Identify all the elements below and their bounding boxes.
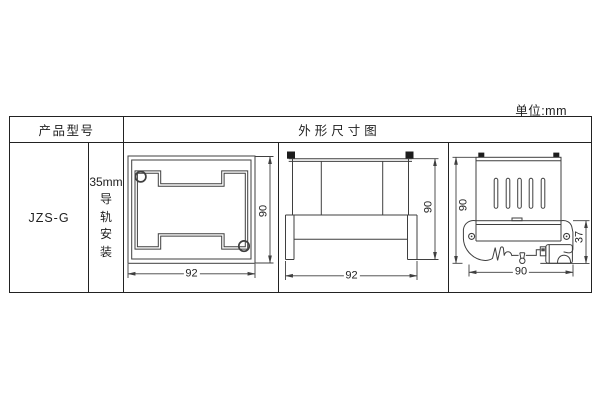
front-view-width-dim: 92: [183, 268, 199, 279]
side-view-height-dim: 90: [424, 198, 435, 214]
rail-view-depth-dim: 37: [575, 229, 586, 245]
mounting-char: 轨: [100, 209, 112, 227]
mounting-char: 安: [100, 226, 112, 244]
table-body-row: JZS-G 35mm 导 轨 安 装: [10, 143, 591, 292]
page: 单位:mm 产品型号 外形尺寸图 JZS-G 35mm 导 轨 安 装: [0, 0, 600, 400]
mounting-cell: 35mm 导 轨 安 装: [89, 143, 124, 292]
dimension-table: 产品型号 外形尺寸图 JZS-G 35mm 导 轨 安 装: [9, 116, 592, 293]
front-view-panel: [124, 143, 279, 292]
mounting-char: 导: [100, 191, 112, 209]
side-view-panel: [279, 143, 449, 292]
header-cell-product-model: 产品型号: [10, 117, 124, 142]
rail-view-height-dim: 90: [459, 196, 470, 212]
mounting-size-label: 35mm: [89, 174, 122, 192]
table-header-row: 产品型号 外形尺寸图: [10, 117, 591, 143]
front-view-height-dim: 90: [259, 203, 270, 219]
rail-view-width-dim: 90: [513, 267, 529, 278]
side-view-width-dim: 92: [343, 270, 359, 281]
header-cell-dimension-diagram: 外形尺寸图: [124, 117, 591, 142]
model-cell: JZS-G: [10, 143, 89, 292]
mounting-char: 装: [100, 244, 112, 262]
